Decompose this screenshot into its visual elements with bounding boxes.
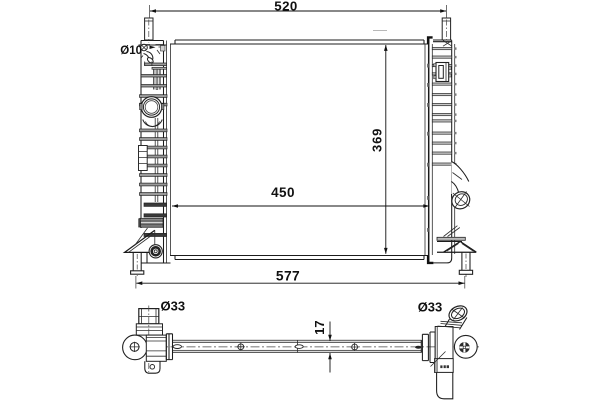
svg-text:17: 17 [312, 320, 327, 334]
svg-text:520: 520 [274, 0, 297, 13]
svg-text:577: 577 [276, 268, 300, 283]
svg-text:450: 450 [271, 185, 295, 200]
svg-text:Ø33: Ø33 [161, 298, 186, 313]
svg-text:Ø33: Ø33 [418, 299, 443, 314]
svg-text:369: 369 [369, 128, 384, 152]
svg-text:Ø10: Ø10 [120, 45, 142, 57]
